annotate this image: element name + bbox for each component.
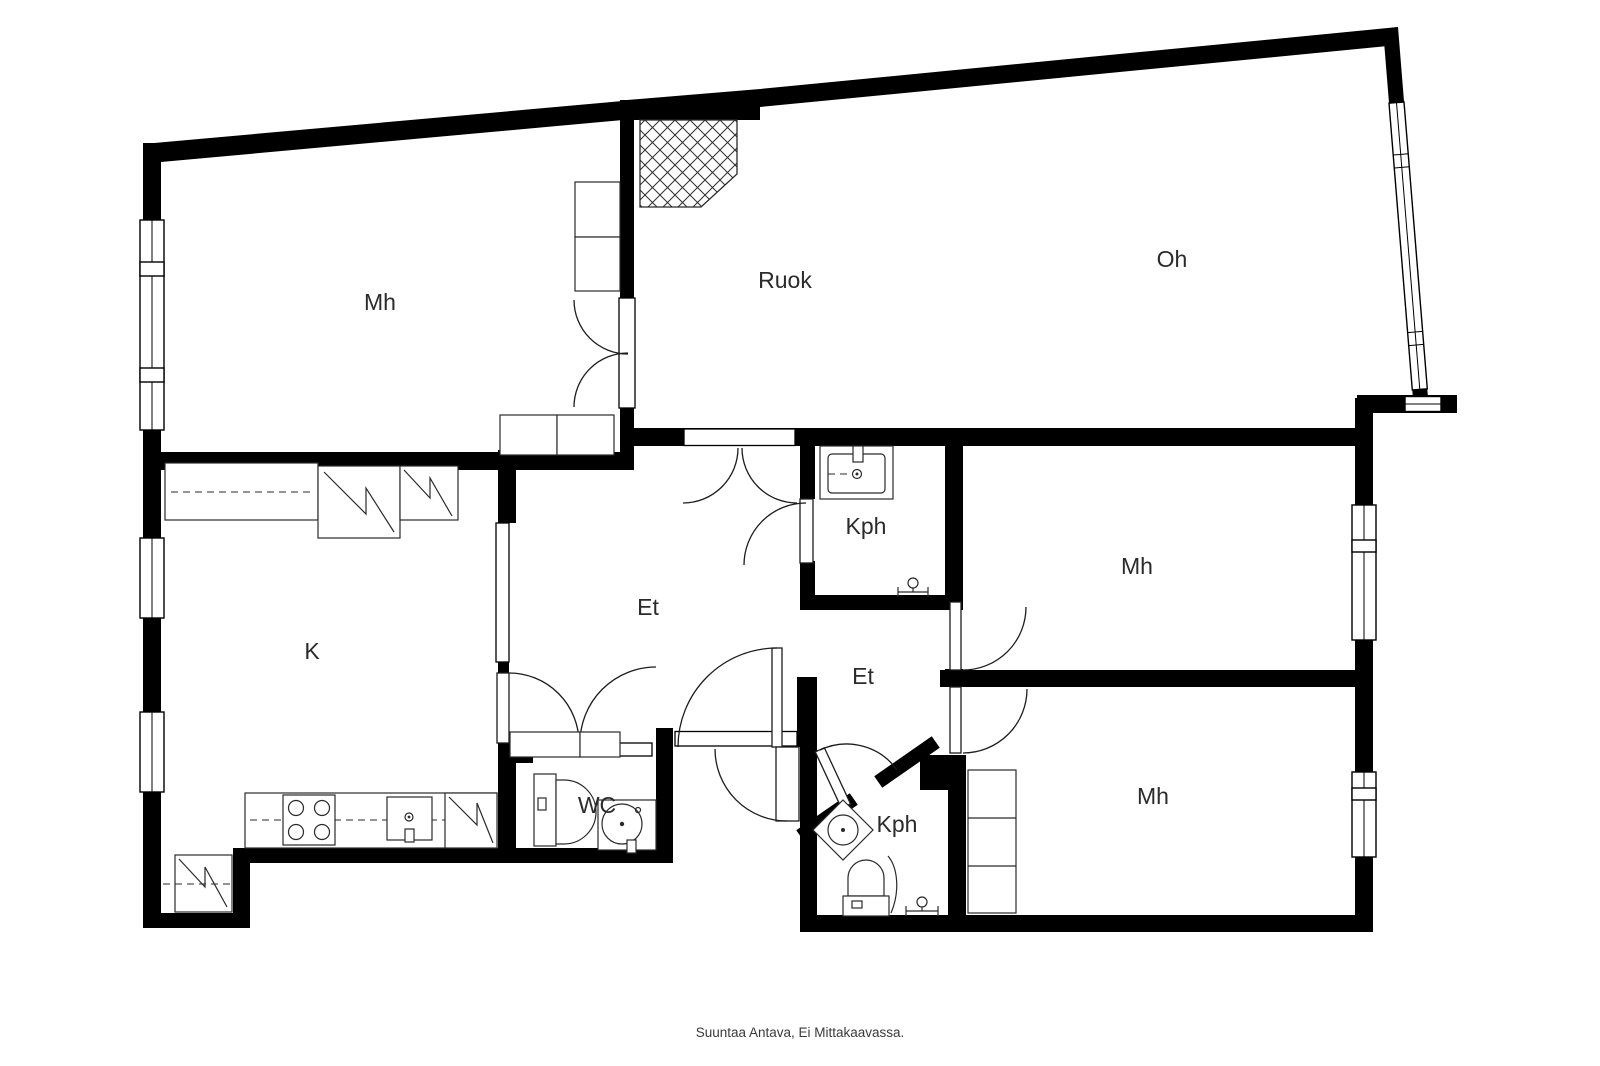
shower-valve-icon-lower (906, 897, 938, 916)
room-label-mh-right-lower: Mh (1137, 783, 1169, 809)
kitchen-upper-counter (165, 463, 318, 520)
freezer-icon (400, 466, 458, 520)
door-leaf-entry-inner (772, 648, 782, 747)
kitchen-sink-icon (387, 797, 432, 842)
cabinet-row-et (510, 732, 620, 757)
window-mh-left (140, 220, 164, 430)
window-mh-lower-right (1352, 772, 1376, 857)
window-mh-upper-right (1352, 505, 1376, 640)
dishwasher-icon (445, 793, 497, 848)
room-label-oh: Oh (1157, 246, 1188, 272)
room-label-ruok: Ruok (758, 267, 812, 293)
toilet-icon-lower-kph (843, 860, 889, 916)
cabinet-row-mh-top-left (500, 415, 614, 455)
wall-wc-right (656, 728, 673, 853)
door-leaf-mh-upper-right (950, 602, 961, 670)
wall-kph-upper-right (945, 446, 963, 602)
window-k-1 (140, 538, 164, 618)
niche-appliance-icon (163, 855, 232, 912)
disclaimer-text: Suuntaa Antava, Ei Mittakaavassa. (696, 1025, 905, 1040)
room-label-mh-right-upper: Mh (1121, 553, 1153, 579)
door-leaf-kph-lower (815, 748, 850, 808)
wall-top-mh (143, 100, 634, 162)
wall-mh-rooms-divider (940, 670, 1361, 687)
wardrobe-mh-lower-right (968, 770, 1016, 913)
wall-mh-ruok-divider-top (620, 100, 634, 298)
chimney-hatch (640, 120, 737, 207)
stove-icon (283, 795, 335, 845)
wall-kph-upper-left-a (800, 446, 815, 499)
window-oh-bottom (1405, 397, 1441, 412)
room-label-et-main: Et (637, 594, 659, 620)
door-leaf-k (497, 673, 509, 743)
fridge-icon (318, 466, 400, 538)
threshold-ruok-et (684, 429, 795, 446)
room-label-mh-top-left: Mh (364, 289, 396, 315)
wall-k-divider-mid (498, 662, 509, 674)
door-arc-ruok-double-b (742, 448, 797, 503)
door-leaf-mh-lower-right (950, 687, 961, 753)
window-k-2 (140, 712, 164, 792)
door-arc-ruok-double-a (683, 448, 738, 503)
door-leaf-kph-upper (800, 499, 813, 563)
room-label-kph-lower: Kph (877, 811, 918, 837)
wall-kph-lower-right (948, 755, 966, 932)
bathroom-sink-icon-upper (820, 446, 893, 499)
shower-valve-icon-upper (898, 578, 928, 597)
door-arc-kph-upper (744, 503, 806, 565)
glass-partition-k-et (496, 523, 509, 662)
door-leaf-entry-outer (776, 747, 799, 821)
room-label-kph-upper: Kph (846, 513, 887, 539)
wall-k-divider-top (498, 450, 516, 523)
bathroom-sink-icon-lower (813, 800, 873, 860)
wall-et-stub (797, 677, 817, 747)
floor-plan-svg: Mh Ruok Oh Kph Mh K Et Et WC Kph Mh Suun… (0, 0, 1600, 1066)
wall-bottom-right (800, 915, 1373, 932)
room-labels: Mh Ruok Oh Kph Mh K Et Et WC Kph Mh (304, 246, 1187, 837)
room-label-k: K (304, 638, 320, 664)
floor-plan-page: Mh Ruok Oh Kph Mh K Et Et WC Kph Mh Suun… (0, 0, 1600, 1066)
room-label-et-corridor: Et (852, 663, 874, 689)
wall-alcove-right (800, 747, 817, 932)
door-arc-mh-lower-right (963, 689, 1027, 753)
wall-top-ruok (627, 89, 760, 120)
wall-kph-upper-bottom (800, 595, 963, 610)
window-oh-right-slanted (1389, 102, 1427, 390)
door-arc-mh-upper-right (963, 607, 1026, 670)
wardrobe-mh-top-left (575, 182, 620, 291)
wall-mh-ruok-divider-bottom (620, 408, 634, 470)
room-label-wc: WC (578, 792, 616, 818)
wall-top-main (760, 27, 1398, 107)
